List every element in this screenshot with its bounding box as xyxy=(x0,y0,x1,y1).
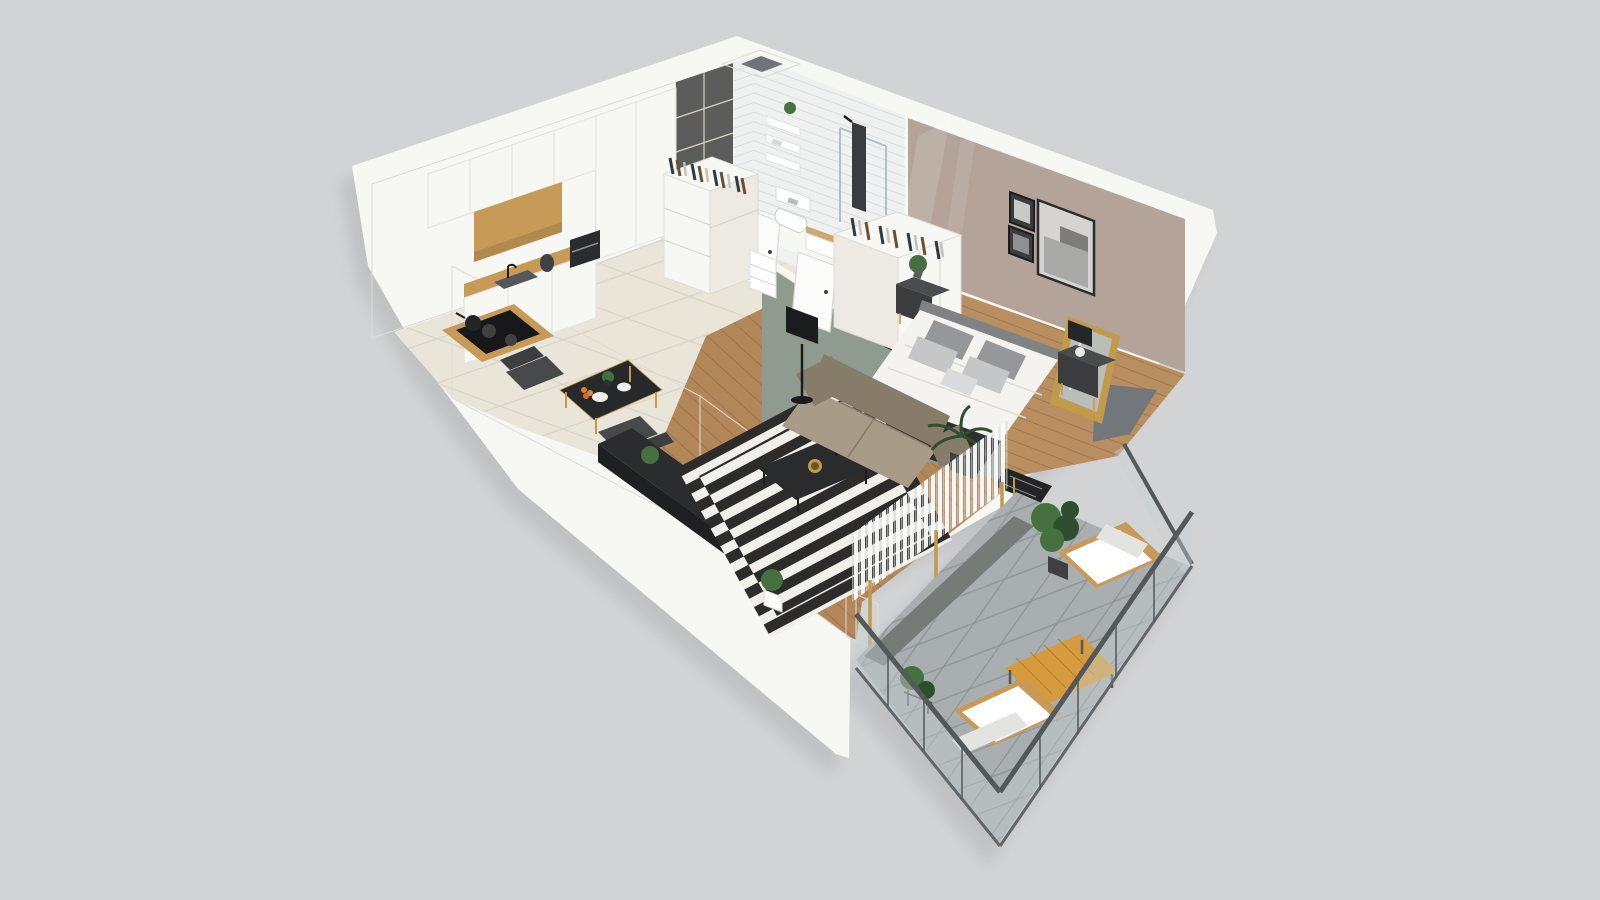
hallway-dresser xyxy=(664,157,758,294)
decor-bowl-inner xyxy=(811,462,819,470)
orange-1 xyxy=(581,387,587,393)
burner-2 xyxy=(505,334,517,346)
burner-1 xyxy=(482,324,496,338)
console-plant-1 xyxy=(641,446,659,464)
plate-1 xyxy=(592,392,608,402)
lamp-base xyxy=(791,396,813,404)
plant-leaves xyxy=(761,569,783,591)
floor-plan-render xyxy=(0,0,1600,900)
leaves-4 xyxy=(1061,501,1079,519)
dresser-front xyxy=(664,174,710,294)
plate-2 xyxy=(617,383,631,392)
bathroom-door-handle xyxy=(768,250,772,254)
orange-3 xyxy=(583,393,589,399)
lamp-base xyxy=(1075,347,1085,357)
bathroom-plant xyxy=(784,102,796,114)
pot xyxy=(465,315,481,331)
shower-column xyxy=(852,122,866,212)
leaves-3 xyxy=(1040,528,1064,552)
floor-plan-svg xyxy=(0,0,1600,900)
kettle xyxy=(540,254,554,272)
bedroom-door-handle xyxy=(824,290,828,294)
